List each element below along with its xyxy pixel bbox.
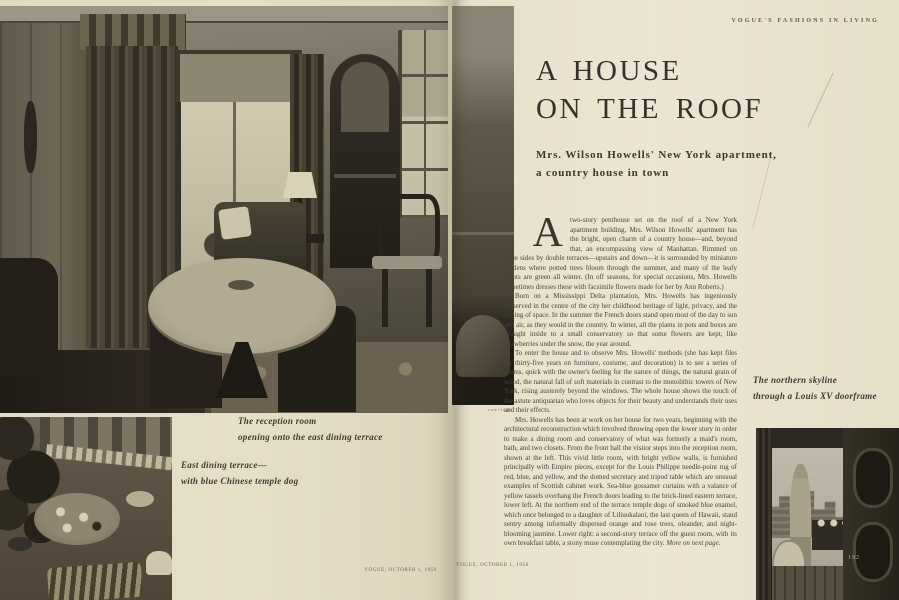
article-body: A two-story penthouse set on the roof of… — [504, 216, 737, 549]
body-paragraph: Mrs. Howells has been at work on her hou… — [504, 416, 737, 549]
paragraph-text: Mrs. Howells has been at work on her hou… — [504, 416, 737, 548]
caption-line: through a Louis XV doorframe — [753, 389, 877, 405]
desk-chair-seat-shape — [372, 256, 442, 269]
more-note: More on next page. — [666, 539, 720, 547]
article-subtitle: Mrs. Wilson Howells' New York apartment,… — [536, 146, 777, 182]
wall-sconce-shape — [24, 101, 37, 173]
body-paragraph: To enter the house and to observe Mrs. H… — [504, 349, 737, 416]
louis-xv-door-shape — [843, 428, 899, 600]
ashtray-shape — [228, 280, 254, 290]
caption-line: The reception room — [238, 414, 383, 430]
drop-cap: A — [533, 216, 563, 246]
round-table-top-shape — [148, 258, 336, 354]
body-paragraph: Born on a Mississippi Delta plantation, … — [504, 292, 737, 349]
skyline-caption: The northern skyline through a Louis XV … — [753, 373, 877, 404]
table-setting-shape — [44, 501, 110, 537]
reception-room-caption: The reception room opening onto the east… — [238, 414, 383, 445]
headline-line: ON THE ROOF — [536, 90, 763, 128]
sofa-pillow-shape — [218, 206, 252, 240]
caption-line: opening onto the east dining terrace — [238, 430, 383, 446]
terrace-stool-shape — [126, 491, 154, 507]
transom-window-shape — [176, 50, 302, 106]
caption-line: The northern skyline — [753, 373, 877, 389]
curtain-valance-shape — [80, 14, 186, 50]
reception-room-photo — [0, 6, 448, 413]
page-number: 192 — [848, 555, 860, 561]
body-paragraph: A two-story penthouse set on the roof of… — [504, 216, 737, 292]
section-eyebrow: VOGUE'S FASHIONS IN LIVING — [649, 18, 879, 24]
left-page-footer: VOGUE, OCTOBER 1, 1956 — [330, 568, 437, 573]
terrace-planter-shape — [8, 537, 32, 551]
subtitle-line: Mrs. Wilson Howells' New York apartment, — [536, 146, 777, 164]
caption-line: East dining terrace— — [181, 458, 298, 474]
lamp-shade-shape — [283, 172, 317, 198]
east-terrace-photo — [0, 417, 172, 600]
window-shape — [398, 30, 448, 218]
right-page: rawlings VOGUE'S FASHIONS IN LIVING A HO… — [450, 0, 899, 600]
subtitle-line: a country house in town — [536, 164, 777, 182]
paper-crease-mark — [807, 73, 833, 128]
white-chair-shape — [146, 551, 172, 575]
right-page-footer: VOGUE, OCTOBER 1, 1956 — [456, 563, 529, 568]
magazine-spread: The reception room opening onto the east… — [0, 0, 899, 600]
left-page: The reception room opening onto the east… — [0, 0, 450, 600]
doorframe-left-shape — [756, 428, 772, 600]
article-headline: A HOUSE ON THE ROOF — [536, 52, 763, 128]
striped-lounge-shape — [47, 562, 143, 600]
east-terrace-caption: East dining terrace— with blue Chinese t… — [181, 458, 298, 489]
headline-line: A HOUSE — [536, 52, 763, 90]
door-panel-shape — [853, 522, 893, 582]
sofa-arm-shape — [456, 315, 510, 377]
drop-cap-box: A — [504, 216, 570, 246]
desk-chair-legs-shape — [382, 269, 432, 327]
cornice-shape — [0, 6, 448, 23]
corner-chair-shape — [0, 258, 58, 376]
caption-line: with blue Chinese temple dog — [181, 474, 298, 490]
northern-skyline-photo: 192 — [756, 428, 899, 600]
door-panel-shape — [853, 448, 893, 508]
secretary-mirror-shape — [341, 62, 389, 132]
secretary-shelf-shape — [334, 174, 396, 178]
